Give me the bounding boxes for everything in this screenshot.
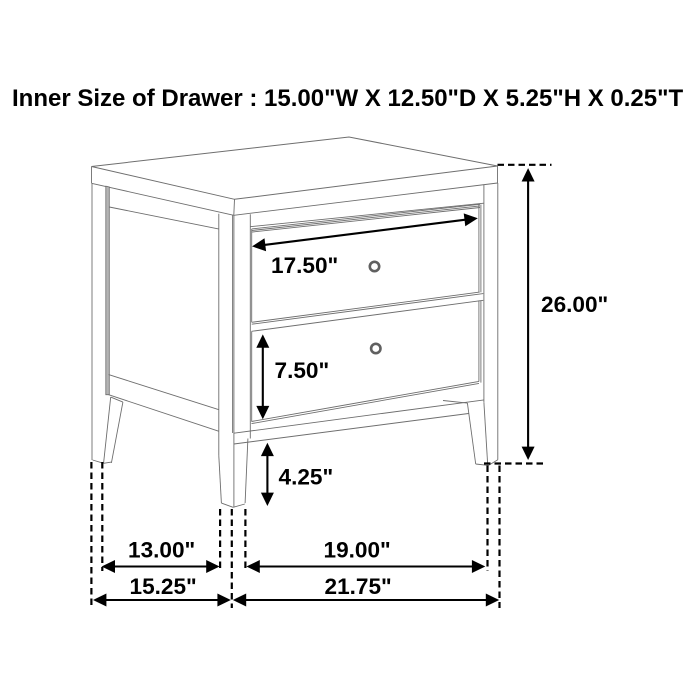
svg-text:17.50": 17.50"	[271, 253, 338, 278]
svg-text:4.25": 4.25"	[279, 465, 334, 490]
svg-text:19.00": 19.00"	[324, 538, 391, 563]
svg-text:13.00": 13.00"	[128, 538, 195, 563]
svg-text:7.50": 7.50"	[275, 358, 330, 383]
svg-text:15.25": 15.25"	[130, 574, 197, 599]
svg-text:21.75": 21.75"	[325, 574, 392, 599]
svg-text:26.00": 26.00"	[541, 292, 608, 317]
